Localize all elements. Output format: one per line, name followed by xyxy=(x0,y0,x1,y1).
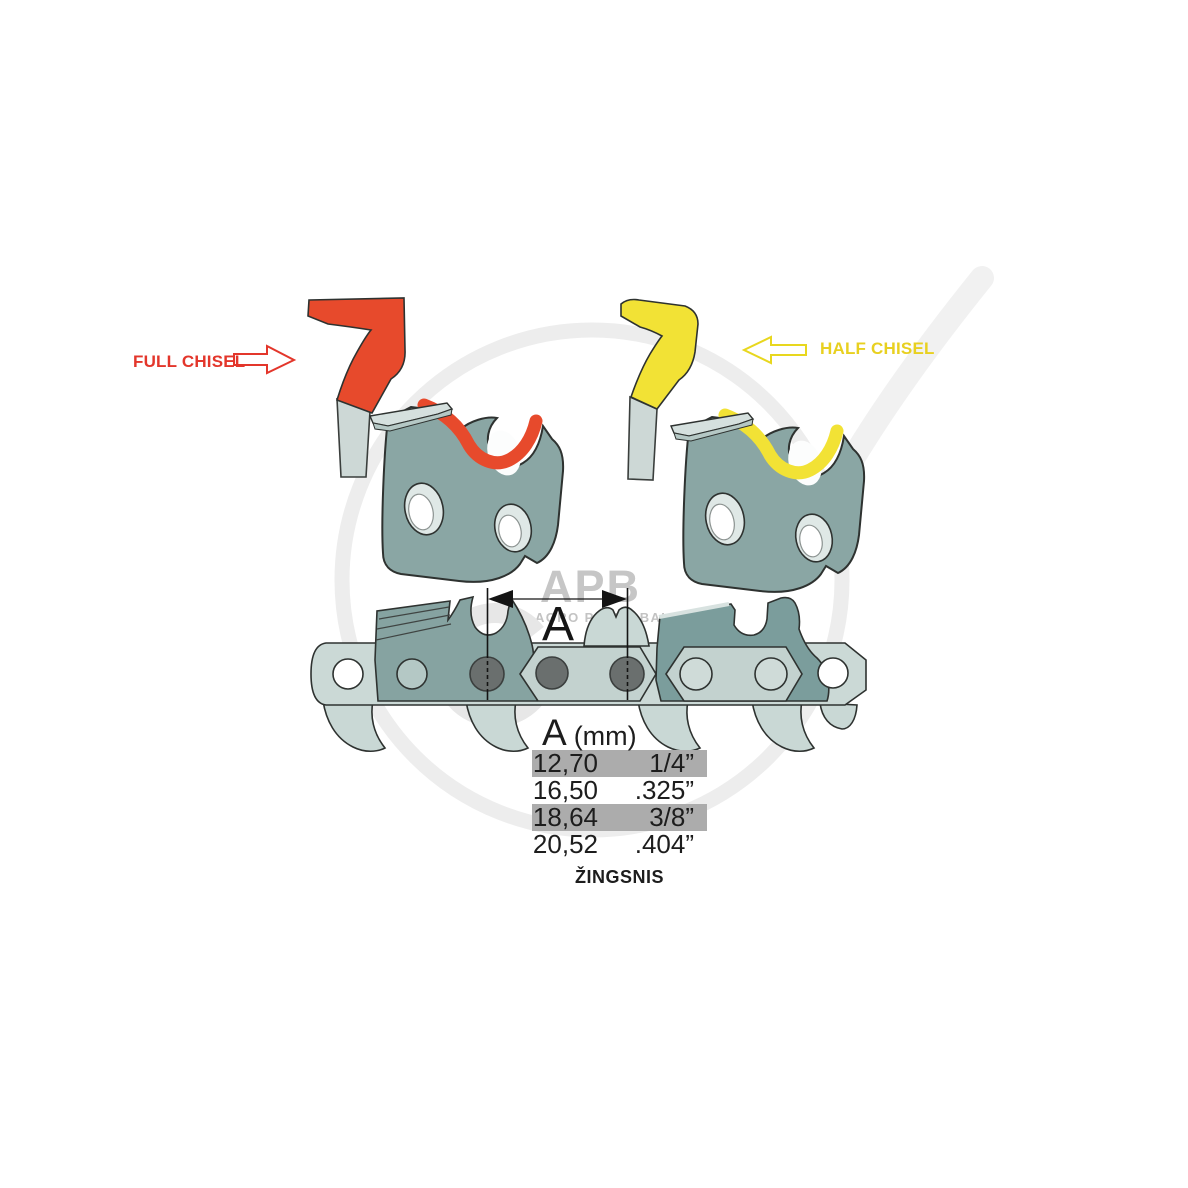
watermark-swoosh xyxy=(846,278,982,470)
profile-shank xyxy=(628,397,657,480)
strap-hole xyxy=(755,658,787,690)
full-chisel-cutter-3d xyxy=(370,403,563,582)
diagram-canvas xyxy=(0,0,1188,1188)
dimension-arrowhead-right xyxy=(602,590,627,608)
chain-cutter-left xyxy=(375,597,537,701)
half-chisel-label: HALF CHISEL xyxy=(820,339,935,359)
pitch-row: 18,64 3/8” xyxy=(532,804,707,831)
chainsaw-pitch-diagram: APB AGRO PARTS BALTIJA xyxy=(0,0,1188,1188)
strap-hole xyxy=(397,659,427,689)
dimension-a-label: A xyxy=(534,597,582,652)
pitch-table-caption: ŽINGSNIS xyxy=(532,867,707,888)
pitch-row: 16,50 .325” xyxy=(532,777,707,804)
pitch-inch: .404” xyxy=(598,829,707,860)
half-chisel-shape xyxy=(621,300,698,410)
full-chisel-label: FULL CHISEL xyxy=(133,352,245,372)
strap-hole xyxy=(680,658,712,690)
half-chisel-cutter-3d xyxy=(671,413,864,592)
drive-link-top xyxy=(584,607,649,646)
pitch-row: 20,52 .404” xyxy=(532,831,707,858)
strap-hole xyxy=(818,658,848,688)
rivet xyxy=(536,657,568,689)
drive-tang xyxy=(820,703,857,729)
pitch-table-header: A (mm) xyxy=(532,712,707,750)
half-chisel-arrow-icon xyxy=(744,337,806,363)
strap-hole xyxy=(333,659,363,689)
pitch-mm: 20,52 xyxy=(532,829,598,860)
full-chisel-shape xyxy=(308,298,405,413)
pitch-row: 12,70 1/4” xyxy=(532,750,707,777)
pitch-table: A (mm) 12,70 1/4” 16,50 .325” 18,64 3/8”… xyxy=(532,712,707,888)
